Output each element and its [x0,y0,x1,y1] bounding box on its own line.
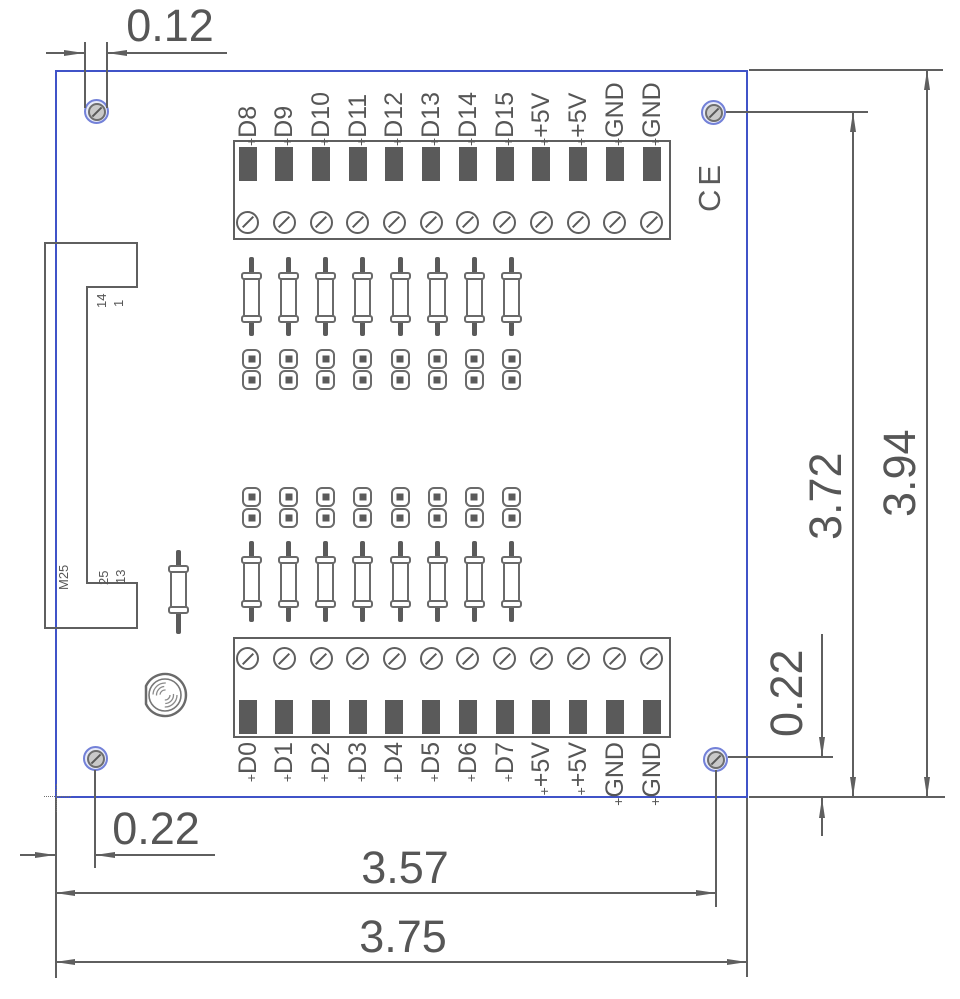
pin-marker: + [279,138,295,146]
terminal-pad [385,700,403,734]
pin-marker: + [389,774,405,782]
jumper-pad [316,349,335,369]
terminal-label-text: D5 [417,742,445,774]
dim-arrow [819,798,825,818]
terminal-label: ++5V [528,93,557,146]
screw-slot [278,652,290,664]
resistor-cap [241,272,262,280]
terminal-label-text: D9 [270,106,298,138]
pin-marker: + [463,774,479,782]
pin-marker: + [500,138,516,146]
terminal-label: +D1 [271,742,300,782]
hole-core [88,103,106,121]
jumper-pin [359,515,366,522]
resistor-cap [501,556,522,564]
terminal-label: +D11 [345,94,374,146]
hole-core [707,751,725,769]
screw-slot [388,652,400,664]
jumper-pin [322,356,329,363]
extension-line [55,798,57,978]
terminal-pad [643,147,661,181]
terminal-label-text: +5V [527,93,555,138]
terminal-pad [569,147,587,181]
jumper-pin [508,377,515,384]
jumper-pad [391,349,410,369]
terminal-screw [530,647,553,670]
terminal-screw [493,211,516,234]
terminal-label: +D12 [381,92,410,146]
pin-marker: + [243,138,259,146]
terminal-label: +D5 [418,742,447,782]
mounting-hole-bottom-right [703,747,728,772]
screw-slot [242,652,254,664]
screw-slot [352,216,364,228]
terminal-pad [312,700,330,734]
screw-slot [425,652,437,664]
terminal-label: +GND [602,82,631,146]
screw-slot [352,652,364,664]
terminal-pad [312,147,330,181]
pin-marker: + [243,774,259,782]
jumper-pin [248,494,255,501]
screw-slot [425,216,437,228]
terminal-screw [456,211,479,234]
terminal-screw [530,211,553,234]
terminal-screw [603,211,626,234]
capacitor-arc [157,687,174,704]
screw-slot [499,216,511,228]
resistor-cap [278,600,299,608]
jumper-pin [248,515,255,522]
dim-arrow [55,959,75,965]
screw-slot [91,106,102,117]
jumper-pad [465,487,484,507]
terminal-label: +D3 [345,742,374,782]
dim-arrow [819,737,825,757]
mounting-hole-bottom-left [83,746,108,771]
terminal-label-text: D0 [234,742,262,774]
screw-slot [278,216,290,228]
screw-slot [90,753,101,764]
jumper-pad [242,508,261,528]
terminal-label-text: +5V [564,93,592,138]
pin-marker: + [536,787,552,795]
capacitor-arc [160,690,170,700]
pin-marker: + [353,774,369,782]
terminal-screw [346,211,369,234]
jumper-pin [285,494,292,501]
jumper-pin [285,356,292,363]
jumper-pad [428,508,447,528]
dim-text-board-width: 3.75 [359,912,447,962]
resistor-cap [390,556,411,564]
terminal-label: +D8 [235,106,264,146]
resistor-cap [390,315,411,323]
extension-line [715,770,717,907]
connector-pin-25: 25 [97,571,111,585]
jumper-pin [471,515,478,522]
jumper-pad [391,370,410,390]
jumper-pad [242,349,261,369]
dim-arrow [107,50,127,56]
terminal-label: +D6 [455,742,484,782]
terminal-label-text: GND [601,82,629,138]
extension-line [726,111,868,113]
resistor-cap [464,600,485,608]
pin-marker: + [426,138,442,146]
pin-marker: + [463,138,479,146]
dim-arrow [55,890,75,896]
terminal-label: +D2 [308,742,337,782]
terminal-pad [606,147,624,181]
jumper-pad [502,487,521,507]
capacitor-ring [149,679,181,711]
terminal-pad [459,700,477,734]
pin-marker: + [573,138,589,146]
mounting-hole-top-right [701,100,726,125]
terminal-screw [383,647,406,670]
jumper-pad [502,349,521,369]
terminal-pad [496,700,514,734]
terminal-pad [239,700,257,734]
jumper-pad [465,508,484,528]
origin-marker [44,796,71,797]
terminal-label-text: D11 [344,94,372,138]
resistor-cap [464,556,485,564]
connector-pin-14: 14 [95,294,109,308]
dim-arrow [696,890,716,896]
jumper-pin [397,356,404,363]
terminal-label-text: D1 [270,742,298,774]
terminal-pad [606,700,624,734]
screw-slot [499,652,511,664]
jumper-pin [285,515,292,522]
connector-name-label: M25 [57,565,71,590]
screw-slot [646,216,658,228]
dim-text-hole-span: 3.57 [361,843,449,893]
dim-text-hole-diameter: 0.12 [126,1,214,51]
terminal-screw [273,211,296,234]
terminal-pad [275,147,293,181]
dim-arrow [850,777,856,797]
jumper-pad [279,349,298,369]
dim-arrow [35,852,55,858]
jumper-pad [465,349,484,369]
terminal-label: +D9 [271,106,300,146]
terminal-pad [422,700,440,734]
pin-marker: + [647,798,663,806]
screw-slot [710,754,721,765]
resistor-cap [168,606,189,614]
resistor-cap [278,556,299,564]
dim-arrow [924,70,930,90]
resistor-cap [315,556,336,564]
jumper-pin [322,494,329,501]
jumper-pin [359,356,366,363]
terminal-label: +D4 [381,742,410,782]
resistor-cap [501,315,522,323]
terminal-label: ++5V [565,93,594,146]
capacitor-outline [146,674,186,716]
jumper-pin [434,494,441,501]
terminal-label: +GND [602,742,631,806]
ce-mark: CE [693,161,727,212]
resistor-cap [501,272,522,280]
jumper-pad [391,487,410,507]
screw-slot [609,652,621,664]
terminal-label-text: D15 [491,92,519,138]
jumper-pad [353,370,372,390]
jumper-pad [316,487,335,507]
jumper-pin [248,356,255,363]
terminal-label-text: D8 [234,106,262,138]
terminal-label-text: D10 [307,92,335,138]
terminal-label: ++5V [565,742,594,795]
screw-slot [315,216,327,228]
jumper-pin [322,377,329,384]
terminal-pad [496,147,514,181]
resistor-cap [427,315,448,323]
jumper-pin [434,377,441,384]
jumper-pad [316,508,335,528]
resistor-cap [352,556,373,564]
resistor-cap [241,600,262,608]
jumper-pad [242,487,261,507]
jumper-pin [322,515,329,522]
pin-marker: + [316,774,332,782]
jumper-pin [359,494,366,501]
terminal-screw [273,647,296,670]
resistor-cap [390,272,411,280]
terminal-label-text: D3 [344,742,372,774]
terminal-label-text: GND [638,82,666,138]
dim-text-board-height: 3.94 [875,429,925,517]
terminal-label-text: D13 [417,92,445,138]
terminal-pad [569,700,587,734]
jumper-pad [316,370,335,390]
screw-slot [572,652,584,664]
jumper-pad [391,508,410,528]
screw-slot [572,216,584,228]
dim-line [852,112,854,797]
terminal-pad [349,147,367,181]
terminal-pad [422,147,440,181]
resistor-cap [501,600,522,608]
jumper-pad [428,349,447,369]
terminal-screw [640,211,663,234]
dim-line [926,70,928,797]
jumper-pin [397,377,404,384]
resistor-cap [352,315,373,323]
jumper-pad [465,370,484,390]
resistor-cap [427,600,448,608]
resistor-cap [464,272,485,280]
dim-text-hole-to-bottom: 3.72 [801,452,851,540]
pin-marker: + [353,138,369,146]
pin-marker: + [389,138,405,146]
screw-slot [315,652,327,664]
resistor-cap [315,315,336,323]
jumper-pad [279,508,298,528]
terminal-label-text: +5V [527,742,555,787]
terminal-label: ++5V [528,742,557,795]
hole-core [87,750,105,768]
screw-slot [462,652,474,664]
resistor-cap [390,600,411,608]
terminal-pad [532,147,550,181]
screw-slot [388,216,400,228]
terminal-label: +D13 [418,92,447,146]
terminal-screw [236,647,259,670]
terminal-screw [640,647,663,670]
terminal-pad [349,700,367,734]
jumper-pad [279,487,298,507]
terminal-screw [236,211,259,234]
dim-arrow [850,112,856,132]
jumper-pin [359,377,366,384]
terminal-label: +D15 [492,92,521,146]
terminal-screw [493,647,516,670]
terminal-label: +D0 [235,742,264,782]
terminal-label-text: +5V [564,742,592,787]
jumper-pad [353,508,372,528]
dim-text-right-hole-offset: 0.22 [762,649,812,737]
terminal-pad [643,700,661,734]
jumper-pin [471,494,478,501]
terminal-label: +D10 [308,92,337,146]
origin-marker [56,784,57,812]
terminal-screw [420,211,443,234]
connector-pin-1: 1 [112,300,126,307]
terminal-screw [383,211,406,234]
terminal-label-text: D7 [491,742,519,774]
terminal-screw [310,211,333,234]
resistor-cap [241,315,262,323]
resistor-cap [427,556,448,564]
resistor-cap [168,565,189,573]
jumper-pin [397,515,404,522]
pin-marker: + [316,138,332,146]
extension-line [746,798,748,977]
terminal-screw [567,647,590,670]
pin-marker: + [610,138,626,146]
resistor-cap [278,272,299,280]
jumper-pad [502,508,521,528]
terminal-label-text: GND [638,742,666,798]
screw-slot [242,216,254,228]
pin-marker: + [500,774,516,782]
terminal-label-text: D4 [380,742,408,774]
resistor-cap [315,600,336,608]
jumper-pin [471,377,478,384]
resistor-cap [315,272,336,280]
jumper-pin [508,356,515,363]
resistor-cap [352,272,373,280]
screw-slot [535,652,547,664]
resistor-cap [278,315,299,323]
terminal-pad [275,700,293,734]
hole-core [705,104,723,122]
pin-marker: + [647,138,663,146]
terminal-label-text: GND [601,742,629,798]
jumper-pin [508,494,515,501]
pin-marker: + [279,774,295,782]
extension-line [84,42,86,108]
terminal-pad [385,147,403,181]
jumper-pad [502,370,521,390]
terminal-label: +D14 [455,92,484,146]
terminal-label: +GND [639,742,668,806]
terminal-label: +D7 [492,742,521,782]
resistor-cap [241,556,262,564]
terminal-label-text: D12 [380,92,408,138]
dim-arrow [924,777,930,797]
screw-slot [535,216,547,228]
jumper-pin [248,377,255,384]
jumper-pad [353,487,372,507]
terminal-label-text: D14 [454,92,482,138]
terminal-label: +GND [639,82,668,146]
dim-arrow [727,959,747,965]
jumper-pad [242,370,261,390]
terminal-pad [532,700,550,734]
pin-marker: + [610,798,626,806]
terminal-pad [459,147,477,181]
jumper-pin [397,494,404,501]
screw-slot [462,216,474,228]
terminal-label-text: D2 [307,742,335,774]
jumper-pin [471,356,478,363]
jumper-pad [353,349,372,369]
terminal-pad [239,147,257,181]
screw-slot [708,107,719,118]
connector-pin-13: 13 [114,570,128,584]
pin-marker: + [426,774,442,782]
pin-marker: + [573,787,589,795]
resistor-cap [352,600,373,608]
board-drawing: 14 1 25 13 M25 CE 0.12 3.94 3.72 0.22 0.… [0,0,960,999]
jumper-pin [285,377,292,384]
extension-line [728,756,833,758]
terminal-label-text: D6 [454,742,482,774]
terminal-screw [420,647,443,670]
resistor-cap [464,315,485,323]
jumper-pad [428,487,447,507]
terminal-screw [567,211,590,234]
jumper-pin [508,515,515,522]
screw-slot [646,652,658,664]
dim-text-left-hole-offset: 0.22 [112,804,200,854]
jumper-pad [428,370,447,390]
jumper-pad [279,370,298,390]
resistor-cap [427,272,448,280]
jumper-pin [434,356,441,363]
extension-line [749,796,945,798]
terminal-screw [310,647,333,670]
dim-arrow [64,50,84,56]
jumper-pin [434,515,441,522]
screw-slot [609,216,621,228]
extension-line [749,69,943,71]
pin-marker: + [536,138,552,146]
